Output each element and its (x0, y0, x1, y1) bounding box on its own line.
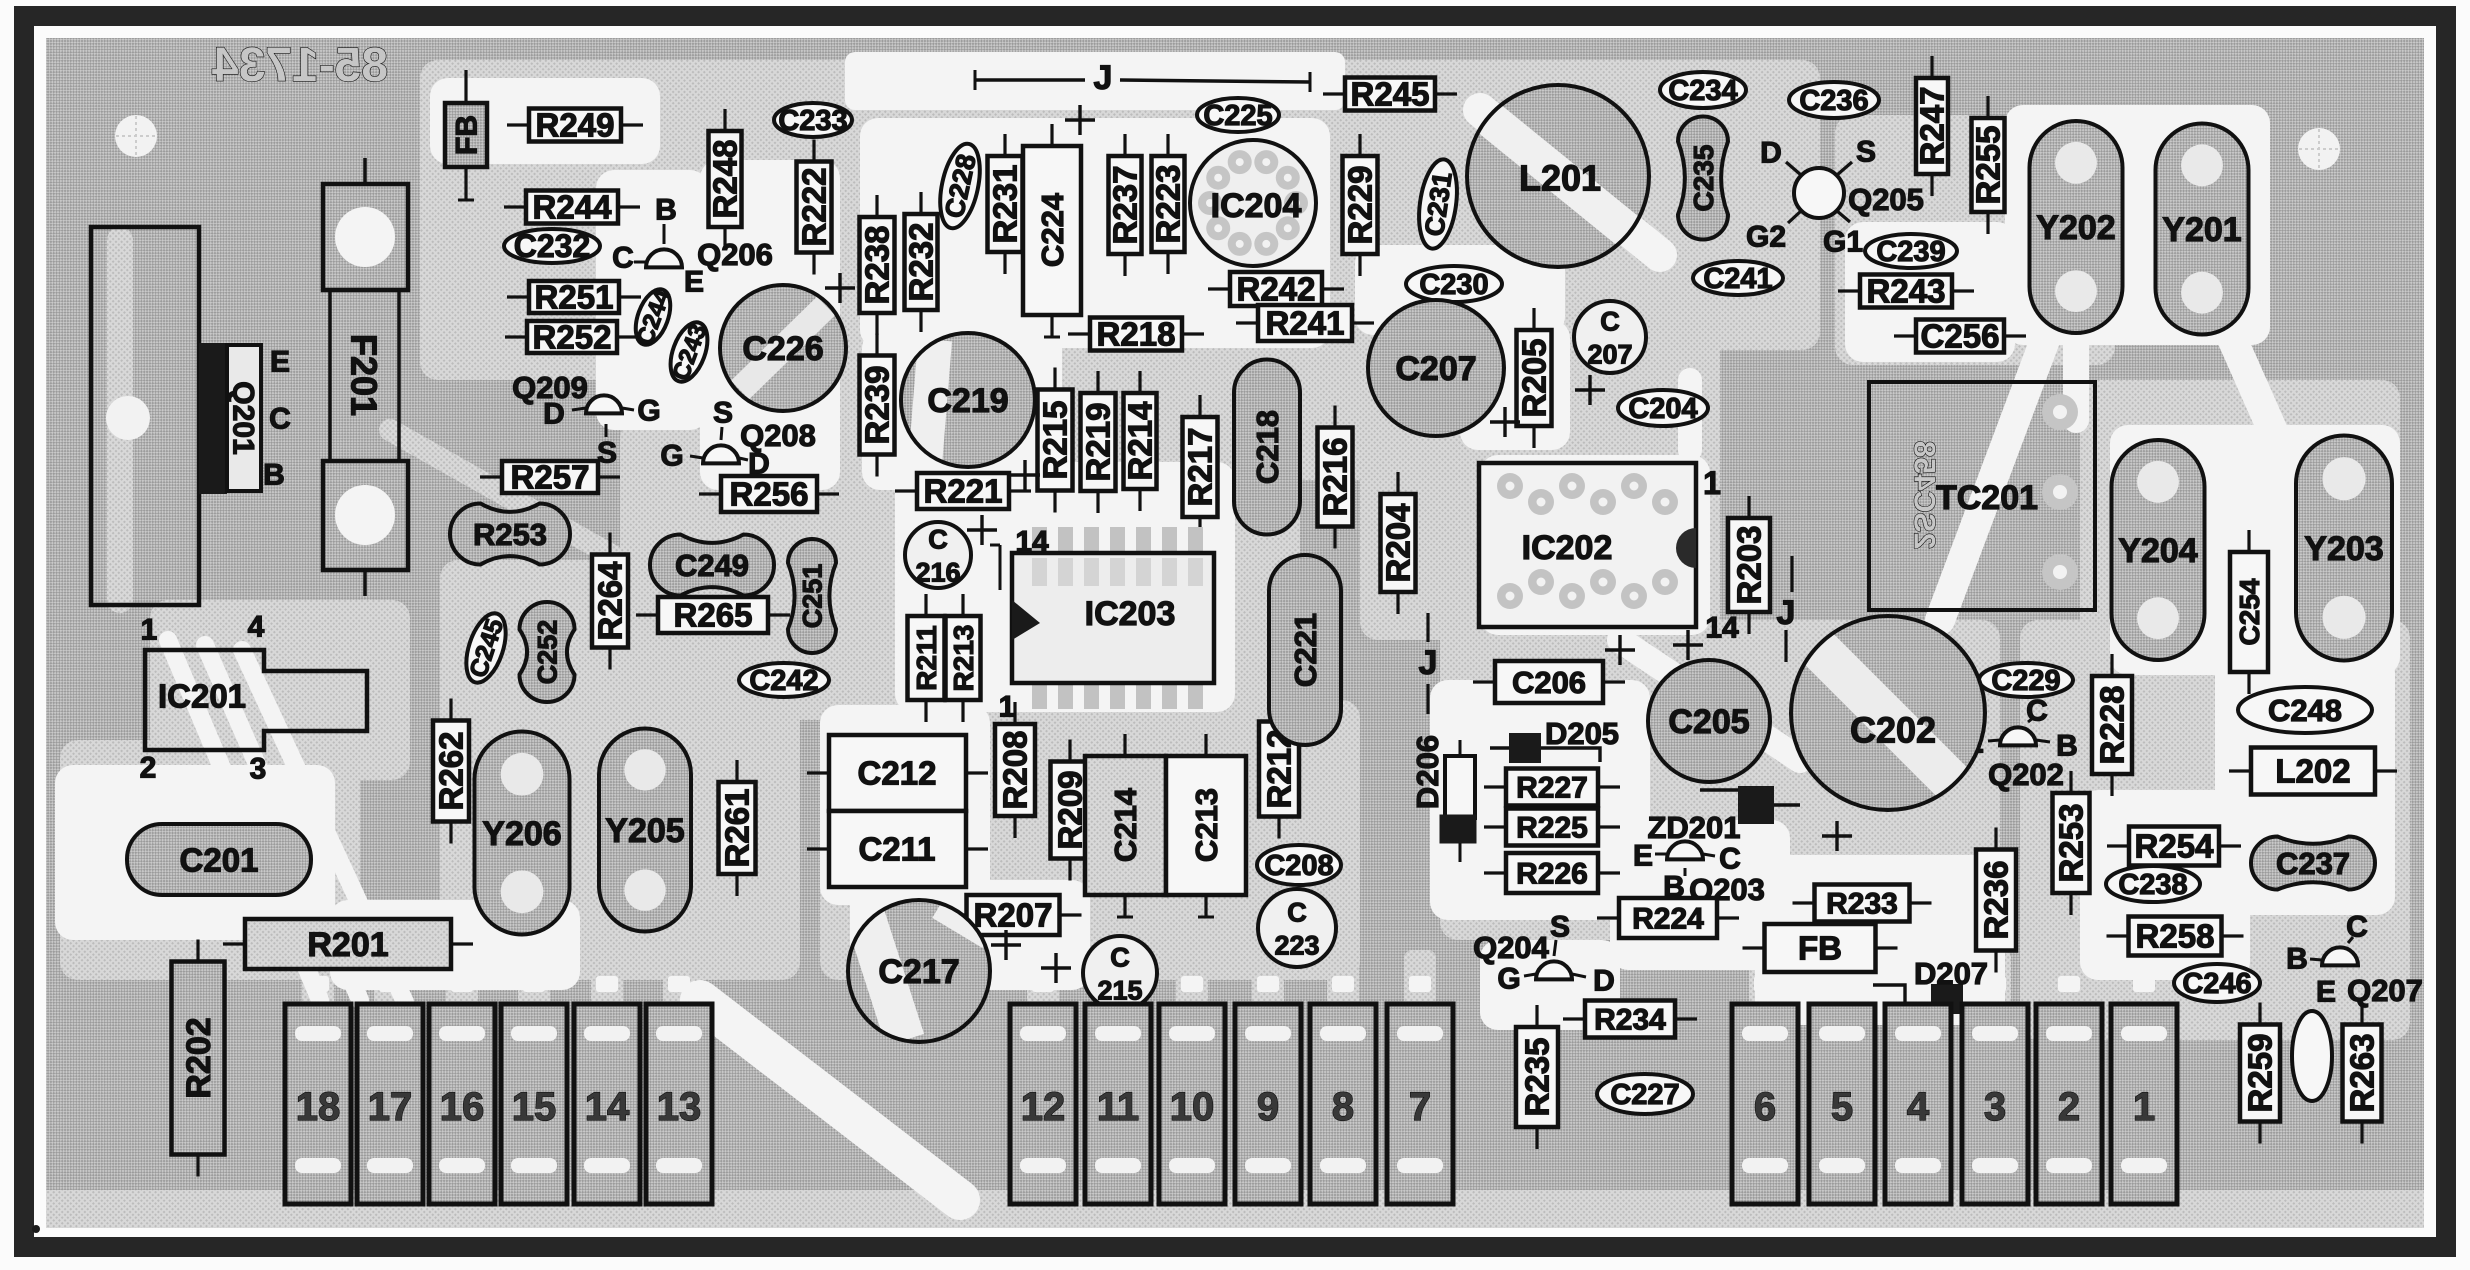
svg-text:3: 3 (250, 753, 267, 786)
svg-text:G1: G1 (1823, 226, 1863, 259)
svg-text:L201: L201 (1519, 158, 1601, 199)
svg-text:16: 16 (440, 1085, 485, 1129)
svg-text:IC202: IC202 (1522, 529, 1613, 567)
svg-text:R202: R202 (180, 1017, 218, 1098)
svg-text:C: C (269, 403, 291, 436)
svg-text:R205: R205 (1516, 339, 1553, 418)
svg-text:C: C (612, 242, 634, 275)
svg-text:Y203: Y203 (2304, 530, 2383, 568)
svg-text:R262: R262 (433, 732, 470, 811)
svg-text:14: 14 (585, 1085, 630, 1129)
svg-text:R242: R242 (1237, 271, 1316, 308)
svg-text:R259: R259 (2242, 1034, 2279, 1113)
svg-text:FB: FB (451, 115, 484, 155)
svg-text:C: C (1287, 897, 1307, 927)
svg-text:Q207: Q207 (2347, 973, 2423, 1008)
svg-text:G: G (660, 440, 683, 473)
svg-text:1: 1 (2133, 1085, 2155, 1129)
svg-text:C: C (2346, 911, 2368, 944)
svg-text:207: 207 (1587, 339, 1632, 369)
svg-text:R201: R201 (307, 926, 388, 964)
svg-text:R231: R231 (987, 165, 1024, 244)
svg-text:R211: R211 (911, 625, 942, 690)
svg-text:18: 18 (296, 1085, 341, 1129)
svg-text:R243: R243 (1867, 273, 1946, 310)
svg-text:C218: C218 (1250, 410, 1285, 484)
svg-text:C256: C256 (1921, 318, 2000, 355)
svg-text:12: 12 (1021, 1085, 1066, 1129)
svg-text:R218: R218 (1097, 316, 1176, 353)
svg-text:R213: R213 (948, 625, 979, 692)
svg-text:Y202: Y202 (2036, 209, 2115, 247)
svg-text:C221: C221 (1288, 613, 1323, 687)
svg-text:R221: R221 (924, 473, 1003, 510)
svg-text:11: 11 (1097, 1085, 1139, 1129)
svg-text:S: S (1856, 136, 1876, 169)
svg-text:R263: R263 (2344, 1034, 2381, 1113)
svg-text:C233: C233 (778, 105, 847, 137)
svg-text:C: C (1719, 843, 1741, 876)
svg-text:Y204: Y204 (2118, 532, 2197, 570)
svg-text:C207: C207 (1395, 350, 1476, 388)
svg-text:R258: R258 (2136, 918, 2215, 955)
svg-text:B: B (263, 459, 285, 492)
svg-text:R225: R225 (1516, 812, 1588, 845)
svg-text:L202: L202 (2275, 753, 2350, 790)
svg-text:C239: C239 (1876, 236, 1945, 268)
svg-text:R247: R247 (1914, 87, 1951, 166)
svg-text:C226: C226 (742, 330, 823, 368)
svg-text:2: 2 (2058, 1085, 2080, 1129)
svg-text:C252: C252 (532, 620, 562, 685)
svg-text:R227: R227 (1516, 772, 1588, 805)
svg-text:IC204: IC204 (1211, 187, 1302, 225)
svg-text:Q205: Q205 (1848, 182, 1924, 217)
svg-text:13: 13 (657, 1085, 702, 1129)
svg-text:B: B (2286, 943, 2308, 976)
svg-text:E: E (2316, 976, 2336, 1009)
svg-text:Y201: Y201 (2162, 211, 2241, 249)
svg-text:Y205: Y205 (605, 812, 684, 850)
svg-text:J: J (1419, 644, 1438, 682)
svg-text:C204: C204 (1628, 393, 1697, 425)
svg-text:R229: R229 (1342, 166, 1379, 245)
svg-text:R257: R257 (511, 459, 590, 496)
svg-text:R233: R233 (1826, 888, 1898, 921)
svg-text:TC201: TC201 (1936, 479, 2038, 517)
svg-text:R226: R226 (1516, 858, 1588, 891)
svg-text:Q208: Q208 (740, 418, 816, 453)
svg-text:17: 17 (368, 1085, 413, 1129)
svg-text:R203: R203 (1731, 526, 1768, 605)
svg-text:D205: D205 (1545, 716, 1619, 751)
svg-text:2SC458: 2SC458 (1908, 441, 1941, 549)
svg-text:D206: D206 (1410, 735, 1445, 809)
svg-text:C248: C248 (2268, 693, 2342, 728)
svg-text:R223: R223 (1150, 165, 1187, 244)
svg-text:14: 14 (1015, 526, 1049, 559)
svg-text:C229: C229 (1991, 665, 2060, 697)
svg-text:C202: C202 (1850, 710, 1936, 751)
svg-text:S: S (597, 437, 617, 470)
svg-text:15: 15 (512, 1085, 557, 1129)
svg-text:J: J (1094, 59, 1113, 97)
svg-text:3: 3 (1984, 1085, 2006, 1129)
svg-text:C213: C213 (1189, 788, 1224, 862)
svg-text:R237: R237 (1107, 166, 1144, 245)
svg-text:S: S (1550, 911, 1570, 944)
svg-text:C211: C211 (858, 831, 935, 868)
svg-text:D: D (543, 398, 565, 431)
svg-text:C212: C212 (858, 755, 937, 792)
svg-text:1: 1 (141, 614, 158, 647)
svg-text:C217: C217 (878, 953, 959, 991)
svg-text:14: 14 (1705, 612, 1739, 645)
svg-text:R235: R235 (1519, 1038, 1556, 1117)
svg-text:G: G (1497, 963, 1520, 996)
svg-text:C: C (1600, 306, 1620, 336)
svg-text:R256: R256 (730, 476, 809, 513)
svg-text:J: J (1777, 594, 1796, 632)
svg-text:G2: G2 (1746, 221, 1786, 254)
svg-text:R241: R241 (1266, 305, 1345, 342)
svg-text:R208: R208 (997, 731, 1034, 810)
svg-text:1: 1 (999, 691, 1016, 724)
svg-text:C246: C246 (2182, 968, 2251, 1000)
svg-text:R219: R219 (1080, 403, 1117, 482)
svg-text:R265: R265 (674, 597, 753, 634)
svg-text:C208: C208 (1264, 850, 1333, 882)
svg-text:R252: R252 (533, 319, 612, 356)
svg-text:5: 5 (1831, 1085, 1853, 1129)
svg-text:R254: R254 (2135, 828, 2215, 865)
svg-text:C241: C241 (1703, 263, 1772, 295)
svg-text:C: C (928, 524, 948, 554)
svg-text:IC203: IC203 (1085, 595, 1176, 633)
svg-text:R232: R232 (903, 223, 940, 302)
svg-text:C230: C230 (1419, 269, 1488, 301)
svg-text:FB: FB (1798, 930, 1842, 967)
svg-text:Q204: Q204 (1473, 930, 1550, 965)
svg-text:Q202: Q202 (1988, 757, 2064, 792)
svg-text:R255: R255 (1970, 126, 2007, 205)
svg-text:4: 4 (248, 611, 265, 644)
svg-text:R228: R228 (2094, 686, 2131, 765)
svg-text:R245: R245 (1351, 76, 1430, 113)
svg-text:D: D (1760, 137, 1782, 170)
svg-text:R236: R236 (1978, 861, 2015, 940)
svg-text:C: C (1110, 942, 1130, 972)
svg-text:C225: C225 (1203, 100, 1272, 132)
svg-text:R253: R253 (2053, 804, 2090, 883)
svg-text:C219: C219 (927, 382, 1008, 420)
svg-text:215: 215 (1097, 975, 1142, 1005)
svg-text:C249: C249 (675, 548, 749, 583)
svg-text:R234: R234 (1594, 1004, 1666, 1037)
svg-text:R253: R253 (473, 517, 547, 552)
svg-text:C227: C227 (1610, 1079, 1679, 1111)
svg-text:C238: C238 (2118, 869, 2187, 901)
svg-text:6: 6 (1754, 1085, 1776, 1129)
svg-text:7: 7 (1409, 1085, 1431, 1129)
svg-text:C224: C224 (1035, 192, 1070, 267)
svg-text:R249: R249 (536, 107, 615, 144)
svg-text:F201: F201 (343, 334, 384, 416)
svg-text:R217: R217 (1182, 428, 1219, 507)
svg-text:C214: C214 (1108, 787, 1143, 862)
svg-text:R238: R238 (859, 226, 896, 305)
svg-text:4: 4 (1907, 1085, 1930, 1129)
svg-text:2: 2 (140, 752, 157, 785)
svg-text:R264: R264 (592, 561, 629, 641)
svg-text:C205: C205 (1668, 703, 1749, 741)
svg-text:R244: R244 (533, 189, 613, 226)
svg-text:R214: R214 (1122, 401, 1159, 481)
svg-text:IC201: IC201 (158, 678, 246, 715)
svg-text:Q201: Q201 (227, 381, 260, 454)
svg-text:1: 1 (1703, 465, 1721, 501)
svg-text:C236: C236 (1799, 85, 1868, 117)
svg-text:Q206: Q206 (697, 237, 773, 272)
svg-text:C234: C234 (1668, 75, 1737, 107)
svg-text:D207: D207 (1914, 956, 1988, 991)
svg-text:C242: C242 (749, 665, 818, 697)
svg-text:85-1734: 85-1734 (212, 39, 388, 92)
svg-text:9: 9 (1257, 1085, 1279, 1129)
svg-text:R239: R239 (859, 366, 896, 445)
svg-text:R251: R251 (535, 279, 614, 316)
svg-text:C206: C206 (1512, 665, 1586, 700)
svg-text:C251: C251 (797, 564, 827, 629)
svg-text:R216: R216 (1317, 438, 1354, 517)
svg-text:G: G (637, 395, 660, 428)
svg-text:R204: R204 (1380, 503, 1417, 583)
svg-text:R248: R248 (707, 140, 744, 219)
svg-text:D: D (1593, 965, 1615, 998)
svg-text:S: S (713, 397, 733, 430)
svg-text:E: E (1633, 840, 1653, 873)
svg-text:8: 8 (1332, 1085, 1354, 1129)
svg-text:R224: R224 (1632, 903, 1704, 936)
svg-text:10: 10 (1170, 1085, 1215, 1129)
svg-text:C254: C254 (2234, 578, 2265, 645)
svg-text:R261: R261 (719, 789, 756, 868)
svg-text:C235: C235 (1688, 145, 1719, 212)
svg-text:R215: R215 (1037, 401, 1074, 480)
svg-text:C201: C201 (180, 842, 259, 879)
svg-text:216: 216 (915, 557, 960, 587)
svg-text:E: E (270, 346, 290, 379)
svg-text:B: B (655, 194, 677, 227)
svg-text:C237: C237 (2276, 846, 2350, 881)
svg-text:C232: C232 (514, 228, 591, 264)
svg-text:Y206: Y206 (482, 815, 561, 853)
svg-text:223: 223 (1274, 930, 1319, 960)
svg-text:ZD201: ZD201 (1647, 810, 1740, 845)
svg-text:R207: R207 (974, 897, 1053, 934)
svg-text:R222: R222 (796, 168, 833, 247)
